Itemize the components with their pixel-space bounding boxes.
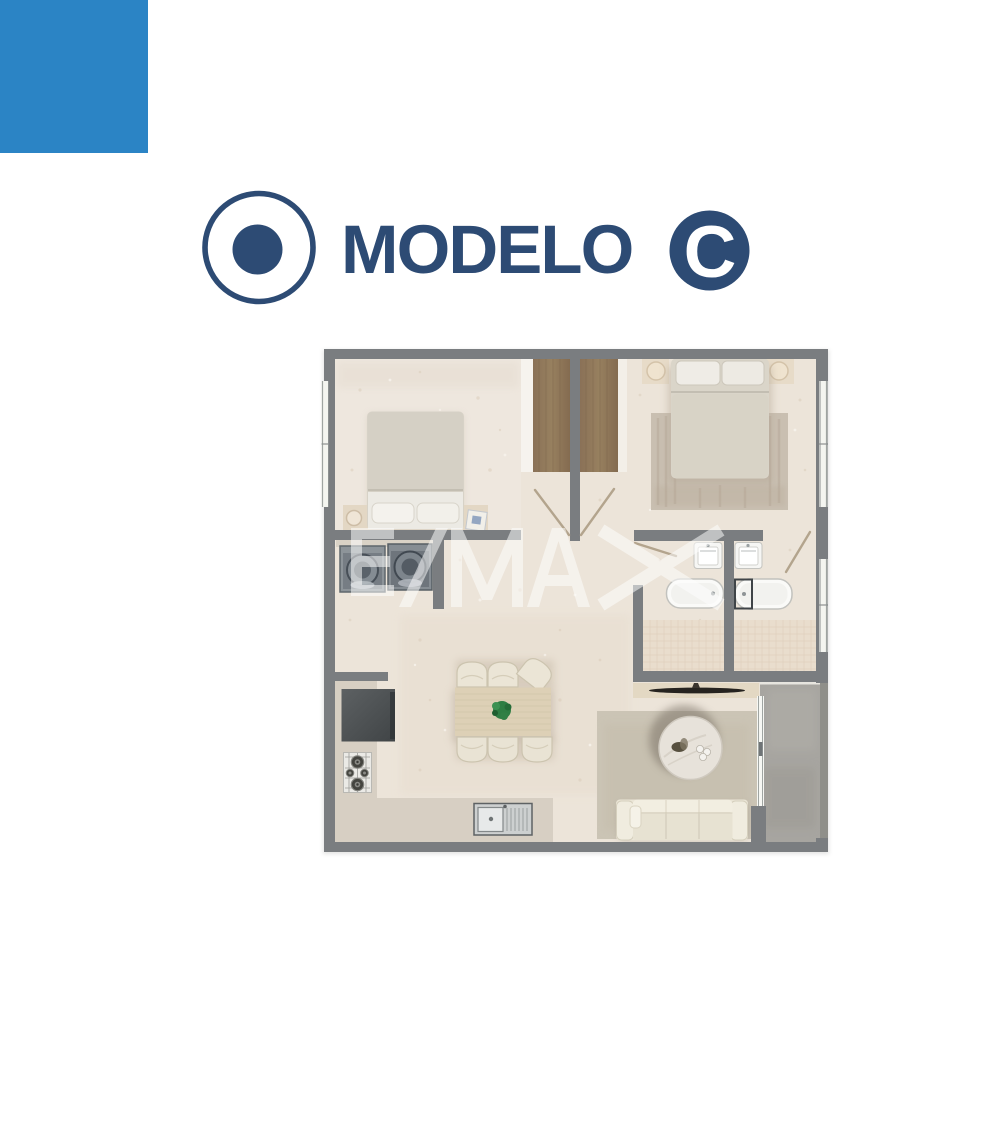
svg-text:MODELO: MODELO: [341, 211, 632, 288]
svg-text:C: C: [684, 212, 737, 293]
